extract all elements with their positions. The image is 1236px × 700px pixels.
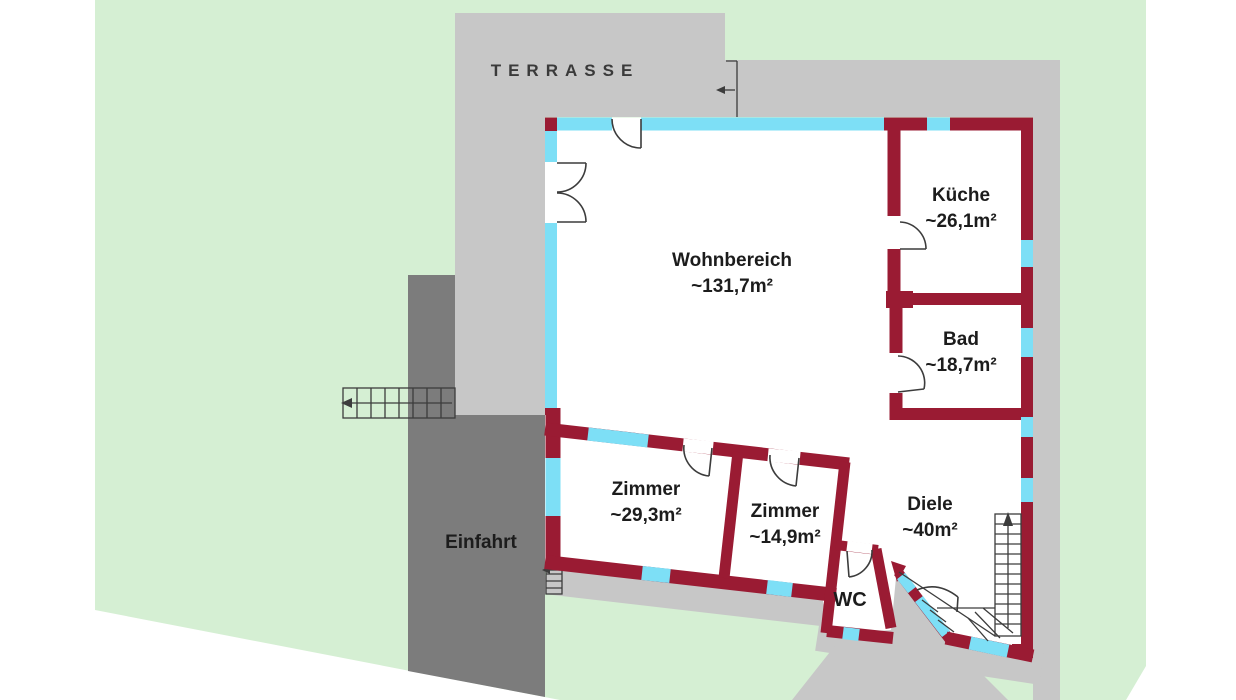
room-name: Küche <box>925 183 996 209</box>
room-label-wc: WC <box>833 587 866 613</box>
floorplan-page: TERRASSE Einfahrt Wohnbereich ~131,7m² K… <box>0 0 1236 700</box>
room-label-diele: Diele ~40m² <box>902 492 957 544</box>
room-name: Bad <box>925 327 996 353</box>
floorplan-drawing <box>0 0 1236 700</box>
room-label-bad: Bad ~18,7m² <box>925 327 996 379</box>
room-label-kueche: Küche ~26,1m² <box>925 183 996 235</box>
north-walkway <box>725 60 1060 117</box>
terrace-label: TERRASSE <box>491 61 640 81</box>
room-name: Wohnbereich <box>672 248 792 274</box>
room-name: Zimmer <box>610 477 681 503</box>
room-area: ~40m² <box>902 518 957 544</box>
room-name: WC <box>833 587 866 613</box>
room-label-zimmer-2: Zimmer ~14,9m² <box>749 499 820 551</box>
room-label-wohnbereich: Wohnbereich ~131,7m² <box>672 248 792 300</box>
driveway-label: Einfahrt <box>445 532 517 554</box>
room-name: Diele <box>902 492 957 518</box>
west-pad <box>455 117 545 417</box>
room-area: ~131,7m² <box>672 274 792 300</box>
east-walkway <box>1033 60 1060 700</box>
room-area: ~26,1m² <box>925 209 996 235</box>
room-label-zimmer-1: Zimmer ~29,3m² <box>610 477 681 529</box>
room-area: ~14,9m² <box>749 525 820 551</box>
room-area: ~29,3m² <box>610 503 681 529</box>
room-area: ~18,7m² <box>925 353 996 379</box>
room-name: Zimmer <box>749 499 820 525</box>
